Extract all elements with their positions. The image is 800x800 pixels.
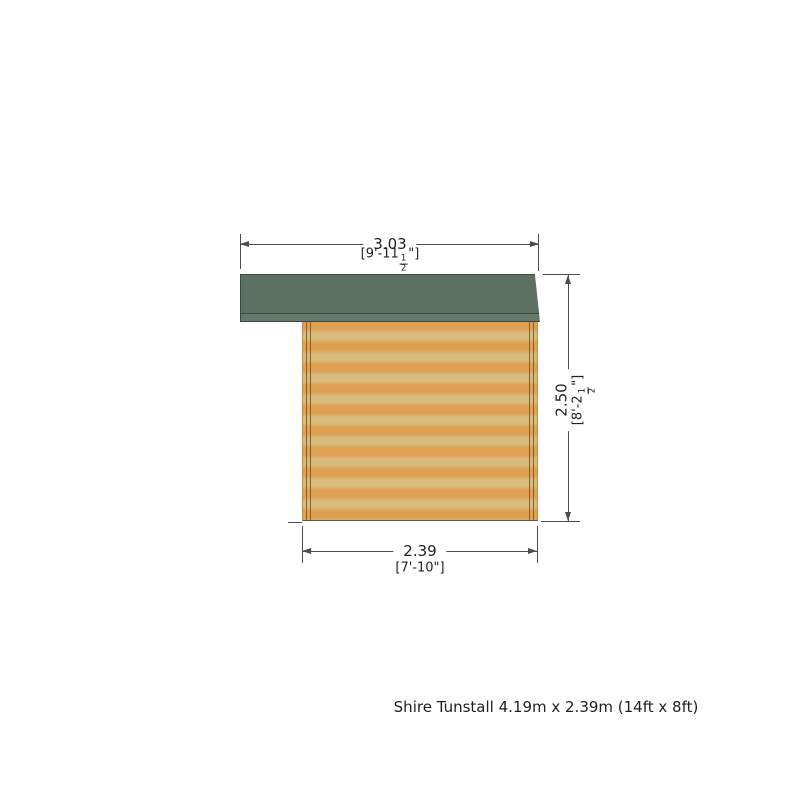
shed-dimension-diagram: 3.03 [9'-1112"] 2.50 [8'-212"] 2.39 [7'-… <box>0 0 800 800</box>
extension-line <box>240 234 241 269</box>
arrowhead-up-icon <box>565 275 571 284</box>
arrowhead-left-icon <box>302 548 311 554</box>
fraction: 12 <box>400 255 407 274</box>
fraction: 12 <box>579 387 598 394</box>
corner-trim-line <box>310 322 311 520</box>
imperial-text: [9'-11 <box>361 247 399 262</box>
extension-line <box>543 274 580 275</box>
corner-trim-line <box>529 322 530 520</box>
imperial-text: [8'-2 <box>571 395 586 425</box>
wall-width-metric-label: 2.39 <box>393 542 446 560</box>
arrowhead-down-icon <box>565 512 571 521</box>
floor-edge-line <box>288 522 302 523</box>
wall-width-imperial-label: [7'-10"] <box>395 561 444 576</box>
roof-width-imperial-label: [9'-1112"] <box>361 247 420 274</box>
extension-line <box>302 526 303 563</box>
extension-line <box>541 521 580 522</box>
log-wall <box>302 322 538 521</box>
arrowhead-left-icon <box>240 241 249 247</box>
corner-trim-line <box>533 322 534 520</box>
height-metric-label: 2.50 <box>553 375 571 425</box>
product-caption: Shire Tunstall 4.19m x 2.39m (14ft x 8ft… <box>394 698 699 716</box>
overall-height-label: 2.50 [8'-212"] <box>551 369 600 431</box>
imperial-text: "] <box>571 375 586 386</box>
arrowhead-right-icon <box>528 548 537 554</box>
arrowhead-right-icon <box>530 241 539 247</box>
extension-line <box>537 526 538 563</box>
height-imperial-label: [8'-212"] <box>571 375 598 425</box>
roof-panel <box>240 274 540 322</box>
corner-trim-line <box>306 322 307 520</box>
extension-line <box>538 234 539 271</box>
imperial-text: "] <box>408 247 419 262</box>
